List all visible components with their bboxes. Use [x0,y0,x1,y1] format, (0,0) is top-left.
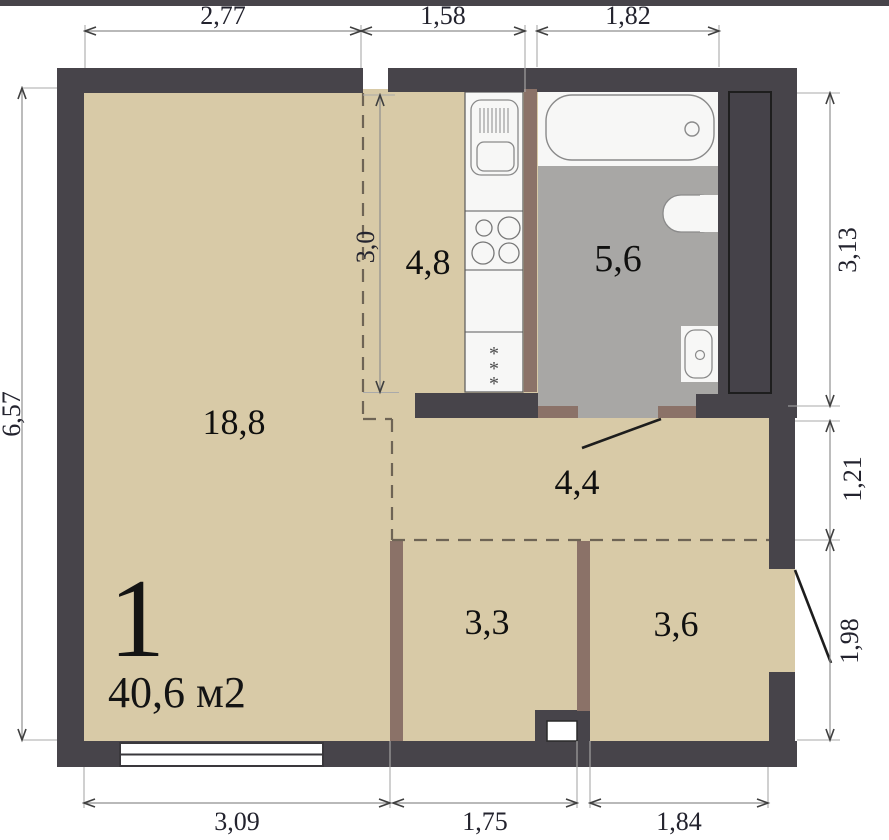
room-label-room-right: 3,6 [654,604,699,644]
dim-top-1: 2,77 [200,1,246,30]
dim-bottom-2: 1,75 [462,807,508,836]
dim-right-1: 3,13 [833,227,862,273]
dim-kitchen-inner: 3,0 [351,231,380,264]
duct-shaft [729,92,771,393]
dim-right-3: 1,98 [835,618,864,664]
room-label-living: 18,8 [203,402,266,442]
toilet-icon [681,326,718,382]
dim-left: 6,57 [0,391,26,437]
fridge-icon: * * * [489,343,499,395]
wall-right-mid [769,418,795,569]
dim-right-2: 1,21 [838,456,867,502]
unit-total-area: 40,6 м2 [108,668,246,717]
wall-left [57,68,84,767]
entry-doorway-floor [769,569,795,672]
wall-top-left [57,68,363,93]
room-label-room-left: 3,3 [465,602,510,642]
dim-bottom-1: 3,09 [214,807,260,836]
entry-door-swing [795,570,831,663]
dim-top-2: 1,58 [420,1,466,30]
partition-room-left [390,541,403,741]
bathtub-icon [538,90,718,166]
dim-bottom-3: 1,84 [656,807,702,836]
floor-plan-page: * * * [0,0,889,840]
room-label-bathroom: 5,6 [594,238,642,280]
room-label-hallway: 4,4 [555,462,600,502]
chimney-shaft-opening [547,721,577,741]
wall-bathroom-bottom-left [415,393,538,418]
wall-right-lower [769,672,795,742]
kitchen-counter: * * * [465,92,523,395]
kitchen-bathroom-wall [524,89,537,392]
bathroom-door-jamb-right [658,406,696,418]
floor-plan: * * * [0,0,889,840]
dim-top-3: 1,82 [605,1,651,30]
room-label-kitchen: 4,8 [406,242,451,282]
bathroom-door-jamb-left [538,406,578,418]
wall-bathroom-bottom-right [696,394,769,418]
window [120,743,323,766]
fridge-star-3: * [489,373,499,395]
washbasin-icon [663,195,718,232]
unit-number: 1 [109,557,165,681]
partition-room-right [577,541,590,711]
